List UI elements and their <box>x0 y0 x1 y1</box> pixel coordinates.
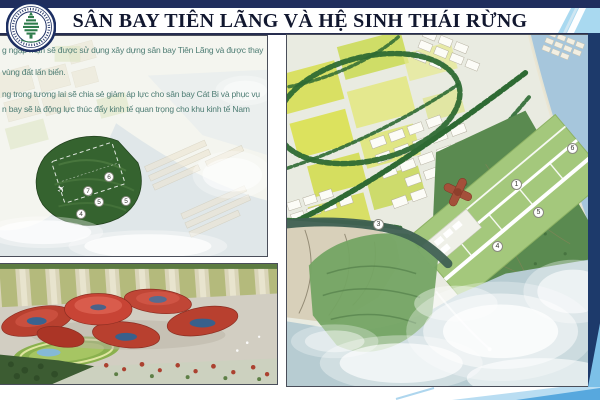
terminal-render-illustration <box>0 264 277 384</box>
map-marker: 6 <box>567 143 578 154</box>
map-marker: 5 <box>533 207 544 218</box>
map-marker: 4 <box>76 209 86 219</box>
map-marker: 5 <box>121 196 131 206</box>
map-marker: 6 <box>104 172 114 182</box>
map-marker: 1 <box>511 179 522 190</box>
bottom-corner-decoration <box>0 387 600 400</box>
right-edge-accent <box>588 302 600 387</box>
site-map-panel: g ngập mặn sẽ được sử dụng xây dựng sân … <box>0 35 268 257</box>
top-bar <box>0 0 600 8</box>
right-edge-band <box>588 33 600 387</box>
map-marker: 3 <box>373 219 384 230</box>
emblem-logo <box>6 2 56 52</box>
intro-text-line: ng trong tương lai sẽ chia sẻ giảm áp lự… <box>2 89 260 99</box>
map-marker: 4 <box>492 241 503 252</box>
map-marker: 5 <box>94 197 104 207</box>
header-corner-decoration <box>552 8 600 33</box>
terminal-render-panel <box>0 263 278 385</box>
map-marker: 7 <box>83 186 93 196</box>
slide-title: SÂN BAY TIÊN LÃNG VÀ HỆ SINH THÁI RỪNG <box>60 8 540 34</box>
slide-canvas: SÂN BAY TIÊN LÃNG VÀ HỆ SINH THÁI RỪNG <box>0 0 600 400</box>
intro-text-line: vùng đất lấn biển. <box>2 67 66 77</box>
master-plan-panel: 1 6 5 4 3 <box>286 34 589 387</box>
intro-text-line: n bay sẽ là động lực thúc đẩy kinh tế qu… <box>2 104 250 114</box>
